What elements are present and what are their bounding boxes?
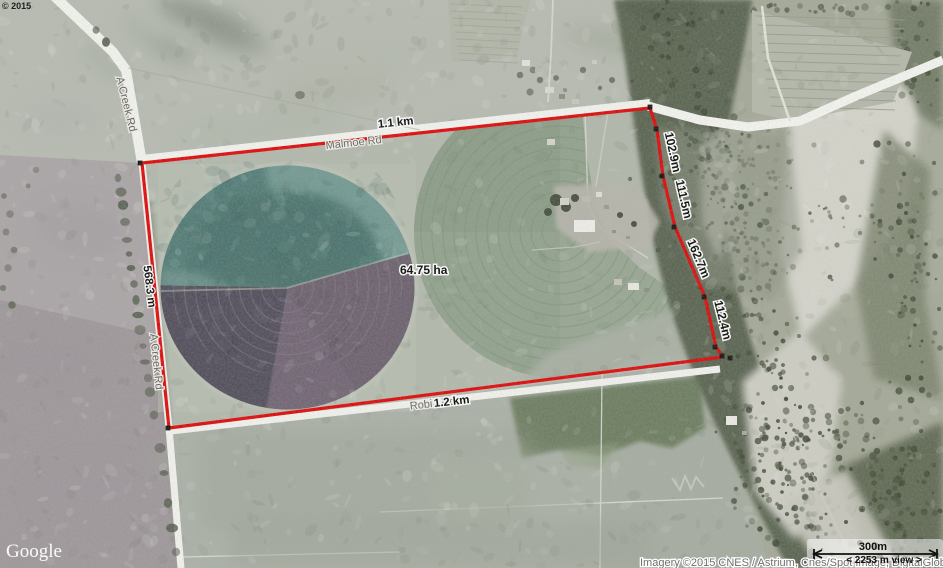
svg-text:300m: 300m (859, 541, 887, 553)
svg-text:< 2253 m view >: < 2253 m view > (846, 555, 922, 566)
svg-text:Google: Google (6, 541, 62, 562)
svg-text:© 2015: © 2015 (2, 1, 31, 11)
